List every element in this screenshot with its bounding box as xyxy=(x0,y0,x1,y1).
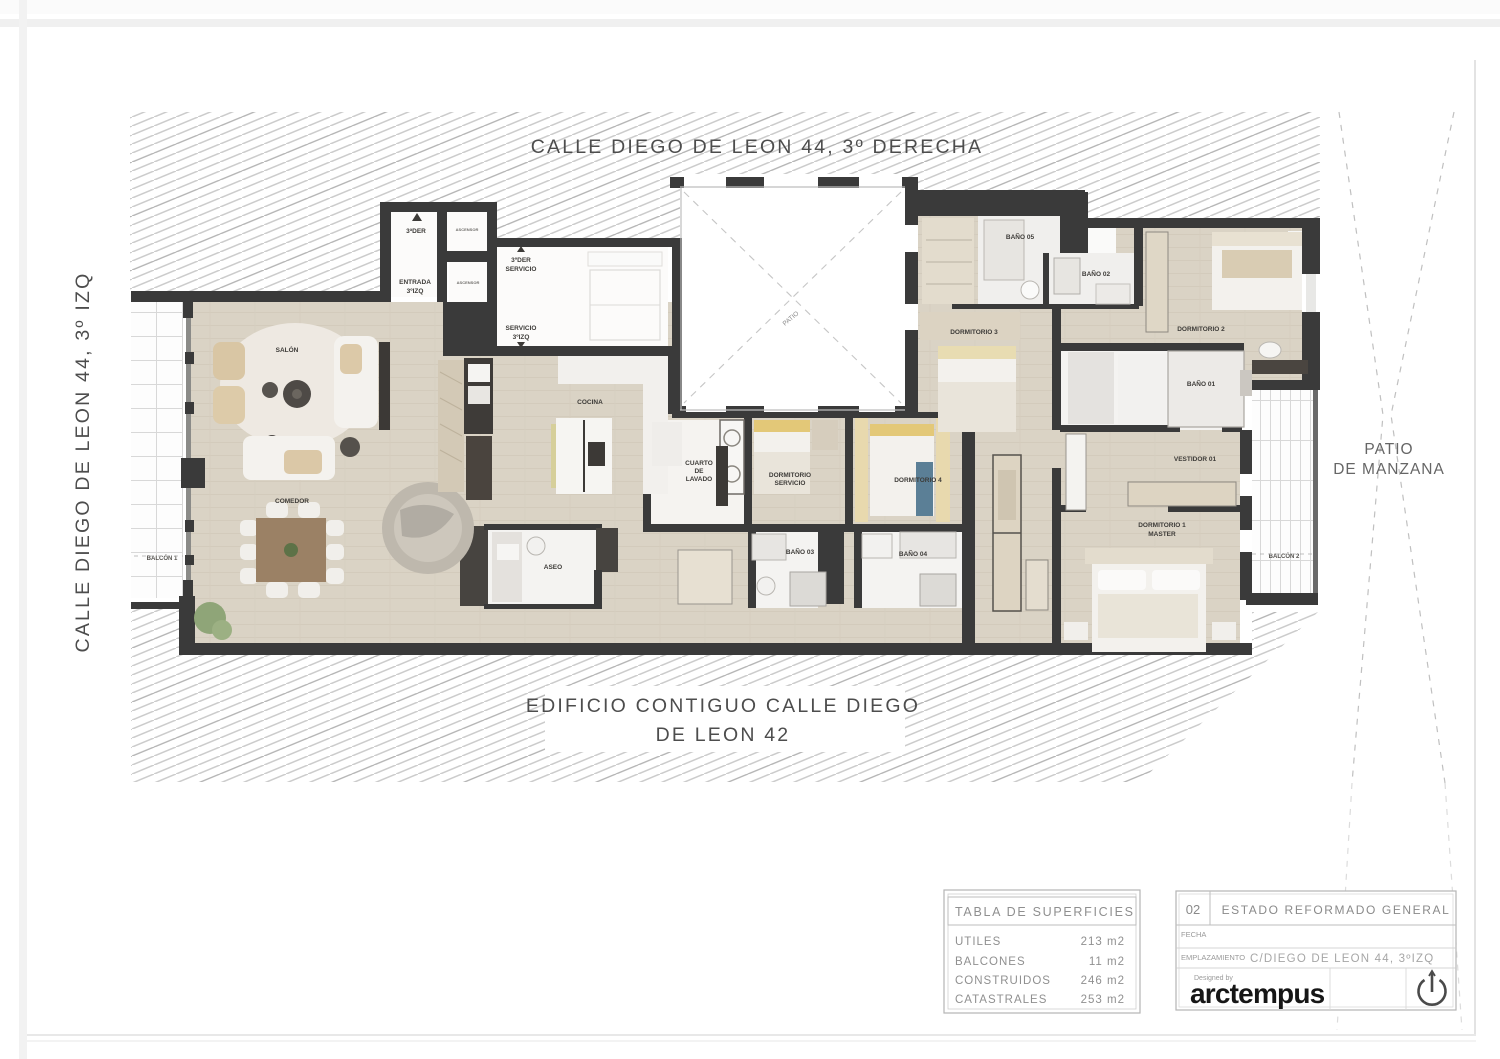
svg-text:246 m2: 246 m2 xyxy=(1081,975,1125,987)
svg-text:CATASTRALES: CATASTRALES xyxy=(955,994,1047,1006)
svg-text:ENTRADA: ENTRADA xyxy=(399,279,431,286)
svg-text:SERVICIO: SERVICIO xyxy=(775,480,806,487)
svg-text:BAÑO 02: BAÑO 02 xyxy=(1082,269,1111,278)
svg-text:BAÑO 03: BAÑO 03 xyxy=(786,547,815,556)
svg-text:BALCÓN 2: BALCÓN 2 xyxy=(1269,552,1300,560)
svg-text:BAÑO 05: BAÑO 05 xyxy=(1006,232,1035,241)
svg-text:C/DIEGO DE LEON 44, 3ºIZQ: C/DIEGO DE LEON 44, 3ºIZQ xyxy=(1250,953,1434,965)
svg-text:ASEO: ASEO xyxy=(544,564,562,571)
svg-text:BALCÓN 1: BALCÓN 1 xyxy=(147,554,178,562)
svg-text:253 m2: 253 m2 xyxy=(1081,994,1125,1006)
svg-text:CALLE DIEGO DE LEON 44, 3º DER: CALLE DIEGO DE LEON 44, 3º DERECHA xyxy=(531,136,984,158)
svg-text:DE: DE xyxy=(694,468,704,475)
svg-text:SERVICIO: SERVICIO xyxy=(506,325,537,332)
svg-text:DE MANZANA: DE MANZANA xyxy=(1333,461,1445,478)
svg-text:DORMITORIO 4: DORMITORIO 4 xyxy=(894,477,942,484)
svg-text:DE LEON 42: DE LEON 42 xyxy=(656,724,791,746)
svg-text:DORMITORIO: DORMITORIO xyxy=(769,472,811,479)
svg-text:MASTER: MASTER xyxy=(1148,531,1176,538)
svg-text:SALÓN: SALÓN xyxy=(276,345,299,354)
svg-text:COMEDOR: COMEDOR xyxy=(275,498,309,505)
svg-text:11 m2: 11 m2 xyxy=(1089,956,1125,968)
svg-text:BAÑO 04: BAÑO 04 xyxy=(899,549,928,558)
svg-text:3ºDER: 3ºDER xyxy=(511,257,531,264)
svg-text:COCINA: COCINA xyxy=(577,399,603,406)
svg-text:DORMITORIO 2: DORMITORIO 2 xyxy=(1177,326,1225,333)
svg-text:arctempus: arctempus xyxy=(1190,978,1325,1009)
svg-text:ESTADO REFORMADO GENERAL: ESTADO REFORMADO GENERAL xyxy=(1222,903,1451,917)
svg-text:ASCENSOR: ASCENSOR xyxy=(456,227,479,232)
svg-text:EMPLAZAMIENTO: EMPLAZAMIENTO xyxy=(1181,953,1245,962)
svg-text:PATIO: PATIO xyxy=(1364,441,1413,458)
svg-text:FECHA: FECHA xyxy=(1181,930,1206,939)
svg-text:ASCENSOR: ASCENSOR xyxy=(457,280,480,285)
svg-text:BALCONES: BALCONES xyxy=(955,956,1026,968)
svg-text:BAÑO 01: BAÑO 01 xyxy=(1187,379,1216,388)
svg-text:3ªDER: 3ªDER xyxy=(406,228,426,235)
svg-text:TABLA DE SUPERFICIES: TABLA DE SUPERFICIES xyxy=(955,905,1135,919)
svg-text:02: 02 xyxy=(1186,902,1200,917)
svg-text:CUARTO: CUARTO xyxy=(685,460,713,467)
svg-text:LAVADO: LAVADO xyxy=(686,476,712,483)
svg-text:EDIFICIO CONTIGUO CALLE DIEGO: EDIFICIO CONTIGUO CALLE DIEGO xyxy=(526,695,920,717)
svg-text:DORMITORIO 1: DORMITORIO 1 xyxy=(1138,522,1186,529)
svg-text:CONSTRUIDOS: CONSTRUIDOS xyxy=(955,975,1051,987)
svg-text:DORMITORIO 3: DORMITORIO 3 xyxy=(950,329,998,336)
svg-text:VESTIDOR 01: VESTIDOR 01 xyxy=(1174,456,1217,463)
svg-text:CALLE DIEGO DE LEON 44, 3º IZQ: CALLE DIEGO DE LEON 44, 3º IZQ xyxy=(72,272,94,653)
svg-text:UTILES: UTILES xyxy=(955,936,1001,948)
svg-text:3ºIZQ: 3ºIZQ xyxy=(513,334,530,341)
svg-text:SERVICIO: SERVICIO xyxy=(506,266,537,273)
svg-text:213 m2: 213 m2 xyxy=(1081,936,1125,948)
svg-text:3ºIZQ: 3ºIZQ xyxy=(407,288,424,295)
